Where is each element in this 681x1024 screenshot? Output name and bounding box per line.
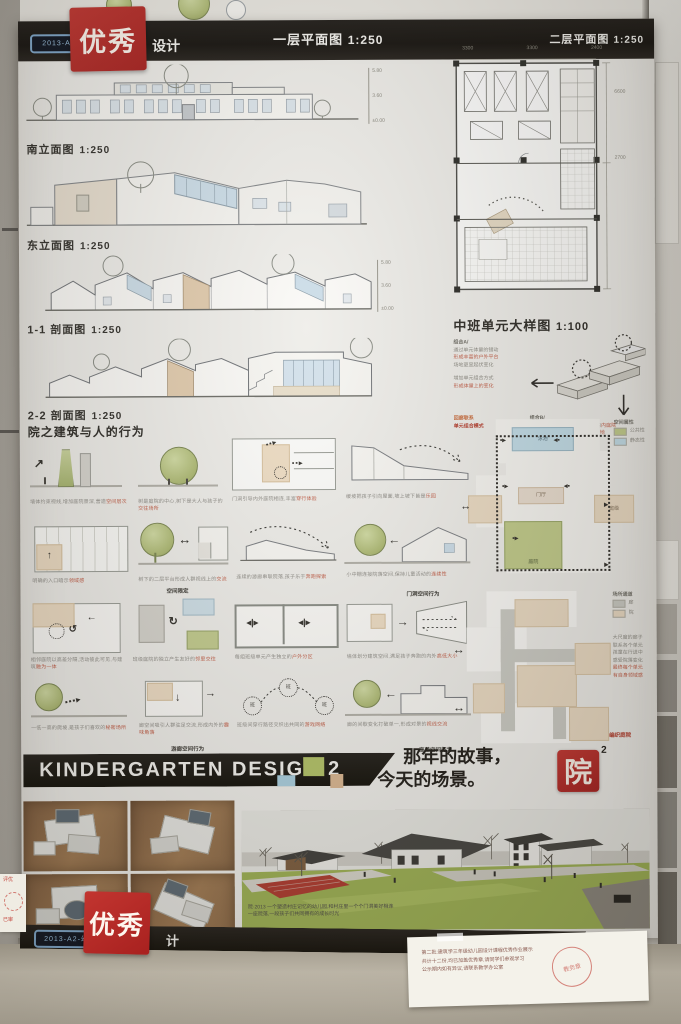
excellence-stamp-top-label: 优秀 — [79, 19, 138, 59]
main-poster: 2013-A2-幼3 设计 一层平面图 1:250 二层平面图 1:250 优秀 — [18, 19, 658, 950]
behavior-cell: 班 班 班 班级间穿行路径交织出共同的游戏网络 — [237, 678, 341, 744]
section-2-2-drawing — [43, 338, 373, 403]
wall-mark — [2, 228, 18, 231]
behavior-cell: ↓ → 廊空间吸引人群驻足交流,形成内外的趣味角落 — [139, 680, 231, 744]
dimension-column: 5.80 3.60 ±0.00 — [377, 260, 394, 312]
yuan-seal: 院 — [557, 750, 599, 792]
behavior-tag: 空间限定 — [166, 587, 188, 595]
neighbor-thumb — [655, 716, 677, 788]
neighbor-thumb — [655, 872, 677, 948]
behavior-cell: → 墙体划分建筑空间,满足孩子奔跑的内外高低大小 — [344, 597, 472, 678]
south-elevation-drawing — [24, 64, 362, 127]
render-caption: 院·2013 一个塑造村庄记忆的幼儿园,和村庄里一个个门洞美好相连 一座院落,一… — [248, 903, 548, 918]
tree-plan-icon — [178, 0, 210, 20]
neighbor-thumb — [655, 540, 679, 600]
neighbor-thumb — [655, 62, 679, 244]
wall-mark — [0, 430, 19, 433]
behavior-cell: 树是庭院的中心,树下是大人与孩子的交往场所 — [138, 440, 226, 516]
section-1-1-label: 1-1 剖面图1:250 — [27, 321, 122, 337]
site-diagram: ↔ ↔ 场所通道 廊 院 大尺度的廊子 联系各个单元 孩童在行进中 感受院落变化… — [456, 591, 653, 748]
east-elevation-label: 东立面图1:250 — [27, 237, 111, 253]
behavior-cell: 缓坡把孩子引向屋面,坡上坡下皆是乐园 — [344, 433, 472, 518]
site-tag: 编织庭院 — [609, 731, 631, 739]
east-elevation-drawing — [25, 158, 369, 234]
section-2-2-label: 2-2 剖面图1:250 — [28, 407, 123, 423]
model-photo — [23, 801, 127, 871]
color-square-blue — [277, 775, 295, 786]
unit-plan-drawing — [448, 55, 621, 310]
color-square-tan — [330, 774, 343, 788]
excellence-stamp-bottom: 优秀 — [83, 891, 151, 955]
flow-diagram: 泳池 门厅 班级 庭院 ▪▸ ◂▪ ▪▸ ◂▪ ↔ ▸ ▪▸ ▸ 空间属性 公共… — [476, 419, 652, 584]
next-poster-suffix: 计 — [166, 930, 179, 949]
behavior-cell: ↺ ← 相邻庭院以高差分隔,活动彼此可见,与建筑融为一体 — [31, 599, 125, 679]
project-title: KINDERGARTEN DESIGN 2 — [39, 758, 341, 782]
plan-dims-side: 6600 2700 — [614, 89, 625, 161]
color-square-green — [303, 757, 324, 776]
tagline: 那年的故事， 今天的场景。 — [377, 745, 577, 791]
site-notes: 大尺度的廊子 联系各个单元 孩童在行进中 感受院落变化 最终每个单元 有自身领域… — [613, 635, 653, 680]
plan1-title: 一层平面图 1:250 — [273, 29, 383, 48]
site-legend: 场所通道 廊 院 — [612, 591, 652, 618]
behavior-cell: ▪▪▪▸ 一低一高的爬坡,是孩子们喜欢的秘密场所 — [31, 683, 131, 745]
dimension-column: 5.80 3.60 ±0.00 — [368, 68, 385, 124]
behavior-cell: ↗ 墙体约束视线,增加庭院景深,营造空间层次 — [30, 441, 130, 517]
behavior-cell: ↻ 班级庭院的独立产生友好的邻里交往 — [130, 598, 226, 678]
combo-note-a: 组合A/ 通过单元体量的错动 形成丰富的户外平台 场地更显起伏变化 增加单元组合… — [453, 339, 525, 390]
behavior-title: 院之建筑与人的行为 — [28, 423, 145, 441]
small-note: 评优 已审 — [0, 874, 26, 932]
section-1-1-drawing — [43, 254, 373, 317]
perspective-rendering: 院·2013 一个塑造村庄记忆的幼儿园,和村庄里一个个门洞美好相连 一座院落,一… — [241, 809, 650, 931]
excellence-stamp-top: 优秀 — [69, 6, 146, 72]
circle-plan-icon — [226, 0, 246, 20]
flow-legend: 空间属性 公共性 静态性 — [614, 419, 652, 446]
behavior-cell: ▪▪▸ ▪▪▸ 门洞引导内外庭院相连,丰富穿行体验 — [230, 438, 340, 516]
flow-dotted-path — [496, 435, 611, 571]
neighbor-thumb — [655, 660, 677, 712]
banner-suffix: 设计 — [152, 36, 180, 56]
plan-dims-top: 3300 3300 2400 — [462, 45, 602, 52]
neighbor-thumb — [655, 792, 677, 868]
neighbor-thumb — [655, 604, 677, 654]
yuan-seal-sup: 2 — [601, 745, 607, 756]
model-photo — [130, 800, 234, 870]
combo-iso-diagram — [523, 333, 645, 426]
behavior-tag: 游廊空间行为 — [171, 745, 204, 753]
photo-scene: 2013-A2-幼3 设计 一层平面图 1:250 二层平面图 1:250 优秀 — [0, 0, 681, 1024]
behavior-cell: ← 小中棚连接院落空间,保持儿童活动的连续性 — [344, 517, 472, 598]
behavior-tag: 门洞空间行为 — [406, 590, 439, 598]
behavior-cell: ◂|▸ ◂|▸ 每组班级单元产生独立的户外分区 — [232, 598, 340, 678]
behavior-cell: ↑ 明确的入口暗示领域感 — [30, 526, 130, 598]
unit-plan-label: 中班单元大样图 1:100 — [453, 315, 589, 335]
note-paper: 第二批:建筑学三年级幼儿园设计课程优秀作业展示 共计十二份,均已加盖优秀章,请同… — [407, 931, 649, 1008]
south-elevation-label: 南立面图1:250 — [27, 141, 111, 157]
behavior-cell: 连续的游廊串联院落,孩子乐于奔跑探索 — [236, 520, 340, 598]
